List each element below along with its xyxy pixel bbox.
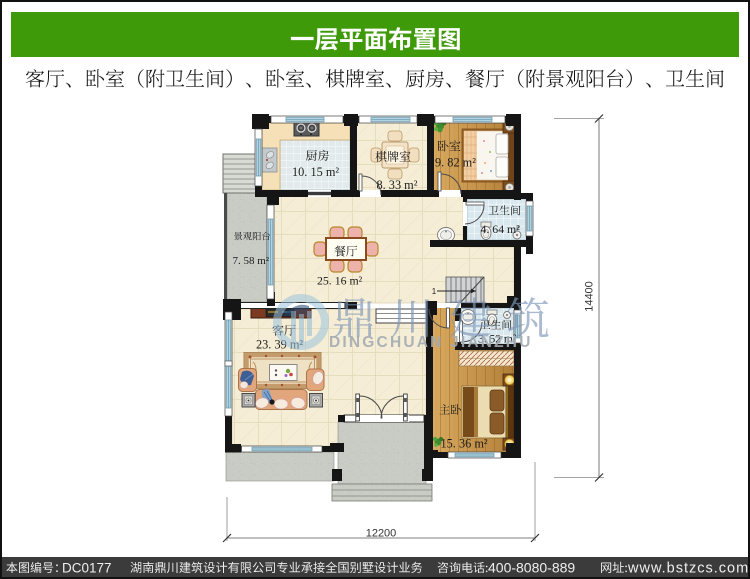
svg-text:7. 58 m²: 7. 58 m² — [233, 255, 270, 267]
svg-text:25. 16 m²: 25. 16 m² — [317, 274, 363, 288]
svg-text:9. 82 m²: 9. 82 m² — [435, 156, 476, 170]
svg-text:DINGCHUAN JIANZHU: DINGCHUAN JIANZHU — [329, 334, 533, 351]
svg-text:8. 33 m²: 8. 33 m² — [377, 178, 418, 192]
svg-text:1: 1 — [432, 287, 437, 296]
svg-text:15. 36 m²: 15. 36 m² — [441, 437, 488, 451]
svg-text:10. 15 m²: 10. 15 m² — [292, 165, 339, 179]
svg-text:www.bstzcs.com: www.bstzcs.com — [627, 561, 749, 577]
svg-text:12200: 12200 — [366, 528, 397, 540]
svg-text:400-8080-889: 400-8080-889 — [488, 560, 575, 576]
svg-text:14400: 14400 — [584, 281, 596, 312]
svg-text:4. 64 m²: 4. 64 m² — [481, 222, 521, 236]
svg-text:DC0177: DC0177 — [62, 561, 112, 576]
